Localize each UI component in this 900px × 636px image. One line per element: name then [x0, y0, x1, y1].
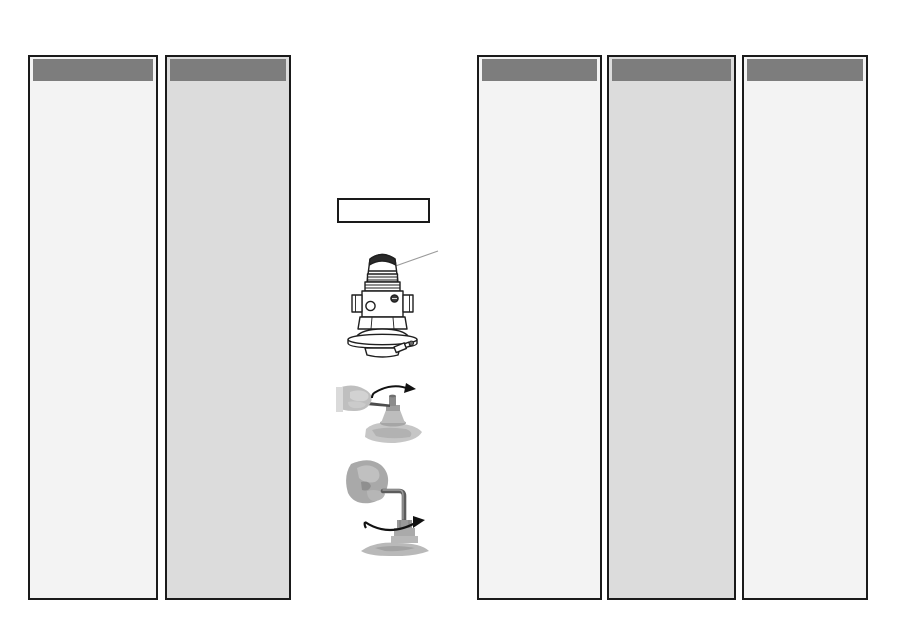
text-column-4	[607, 55, 736, 600]
column-5-header-bar	[747, 59, 863, 81]
text-column-2	[165, 55, 291, 600]
column-3-header-bar	[482, 59, 597, 81]
hand-turning-stem-flat-tool-photo	[336, 380, 428, 447]
text-column-5	[742, 55, 868, 600]
column-2-header-bar	[170, 59, 286, 81]
column-1-header-bar	[33, 59, 153, 81]
text-column-1	[28, 55, 158, 600]
valve-line-drawing-icon	[334, 240, 444, 360]
text-column-3	[477, 55, 602, 600]
hand-turning-stem-hex-key-photo	[341, 458, 433, 556]
document-page	[0, 0, 900, 636]
callout-box	[337, 198, 430, 223]
column-4-header-bar	[612, 59, 731, 81]
